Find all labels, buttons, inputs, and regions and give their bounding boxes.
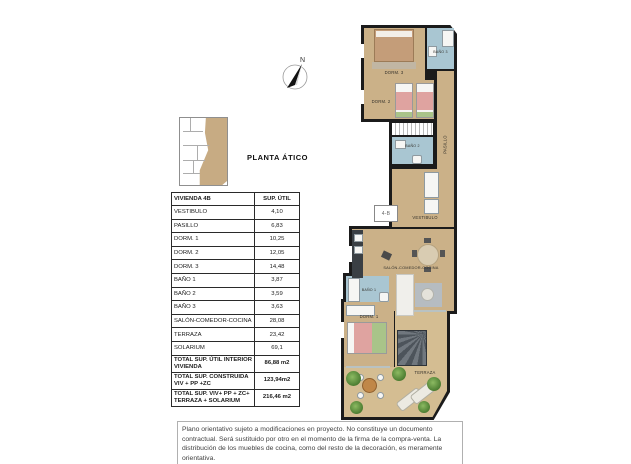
- room-label-bano3: BAÑO 3: [427, 50, 454, 54]
- terrace-chair: [377, 374, 384, 381]
- floorplan-sheet: N PLANTA ÁTICO: [0, 0, 631, 464]
- terrace-chair: [377, 392, 384, 399]
- window: [361, 90, 364, 104]
- room-label-dorm3: DORM. 3: [372, 70, 416, 75]
- room-label-dorm2: DORM. 2: [366, 99, 396, 104]
- window: [341, 322, 344, 338]
- staircase: [397, 330, 427, 366]
- table-total-row: TOTAL SUP. VIV+ PP + ZC+ TERRAZA + SOLAR…: [172, 389, 300, 406]
- chair: [424, 238, 431, 243]
- closet: [392, 123, 433, 135]
- compass-north-label: N: [300, 57, 305, 64]
- key-plan-unit-highlight: [180, 118, 227, 185]
- kitchen-appliance: [354, 234, 363, 242]
- table-row: DORM. 110,25: [172, 233, 300, 247]
- terrace-door-glass: [346, 366, 390, 368]
- closet: [424, 172, 439, 198]
- bed-single: [416, 83, 434, 118]
- table-row: SOLARIUM69,1: [172, 341, 300, 355]
- area-table: VIVIENDA 4B SUP. ÚTIL VESTIBULO4,10 PASI…: [171, 192, 300, 407]
- room-label-bano1: BAÑO 1: [353, 288, 385, 292]
- table-total-row: TOTAL SUP. ÚTIL INTERIOR VIVIENDA86,88 m…: [172, 355, 300, 372]
- table-header-row: VIVIENDA 4B SUP. ÚTIL: [172, 193, 300, 206]
- north-compass-icon: N: [281, 50, 317, 102]
- table-row: PASILLO6,83: [172, 219, 300, 233]
- plant: [346, 371, 361, 386]
- table-row: DORM. 314,48: [172, 260, 300, 274]
- toilet: [379, 292, 389, 302]
- shower: [424, 199, 439, 214]
- table-row: BAÑO 13,87: [172, 273, 300, 287]
- dining-table: [417, 244, 439, 266]
- room-label-vestibulo: VESTIBULO: [403, 215, 447, 220]
- unit-label: 4-B: [382, 211, 390, 217]
- chair: [412, 250, 417, 257]
- table-row: DORM. 212,05: [172, 246, 300, 260]
- bed-double: [347, 322, 387, 354]
- terrace-chair: [357, 392, 364, 399]
- terrace-table: [362, 378, 377, 393]
- disclaimer-box: Plano orientativo sujeto a modificacione…: [177, 421, 463, 464]
- table-header-value: SUP. ÚTIL: [255, 193, 300, 206]
- plant: [418, 401, 430, 413]
- table-header-name: VIVIENDA 4B: [172, 193, 255, 206]
- ottoman: [421, 288, 434, 301]
- room-label-dorm1: DORM. 1: [352, 314, 386, 319]
- kitchen-appliance: [354, 246, 363, 254]
- plant: [427, 377, 441, 391]
- plant: [392, 367, 406, 381]
- page-title: PLANTA ÁTICO: [247, 153, 308, 162]
- table-row: SALÓN-COMEDOR-COCINA28,08: [172, 314, 300, 328]
- plant: [350, 401, 363, 414]
- table-row: BAÑO 33,63: [172, 301, 300, 315]
- room-label-pasillo: PASILLO: [443, 124, 448, 166]
- rug: [372, 62, 416, 69]
- room-label-salon: SALÓN-COMEDOR-COCINA: [378, 265, 444, 270]
- table-row: BAÑO 23,59: [172, 287, 300, 301]
- room-label-terraza: TERRAZA: [405, 370, 445, 375]
- room-label-bano2: BAÑO 2: [394, 144, 431, 148]
- bed-pillows: [376, 31, 412, 37]
- bed-single: [395, 83, 413, 118]
- unit-label-box: 4-B: [374, 205, 398, 222]
- table-row: VESTIBULO4,10: [172, 206, 300, 220]
- sofa: [396, 274, 414, 316]
- key-plan: [179, 117, 228, 186]
- chair: [440, 250, 445, 257]
- table-row: TERRAZA23,42: [172, 328, 300, 342]
- window: [361, 44, 364, 58]
- shower: [442, 30, 454, 47]
- table-total-row: TOTAL SUP. CONSTRUIDA VIV + PP +ZC123,94…: [172, 372, 300, 389]
- toilet: [412, 155, 422, 164]
